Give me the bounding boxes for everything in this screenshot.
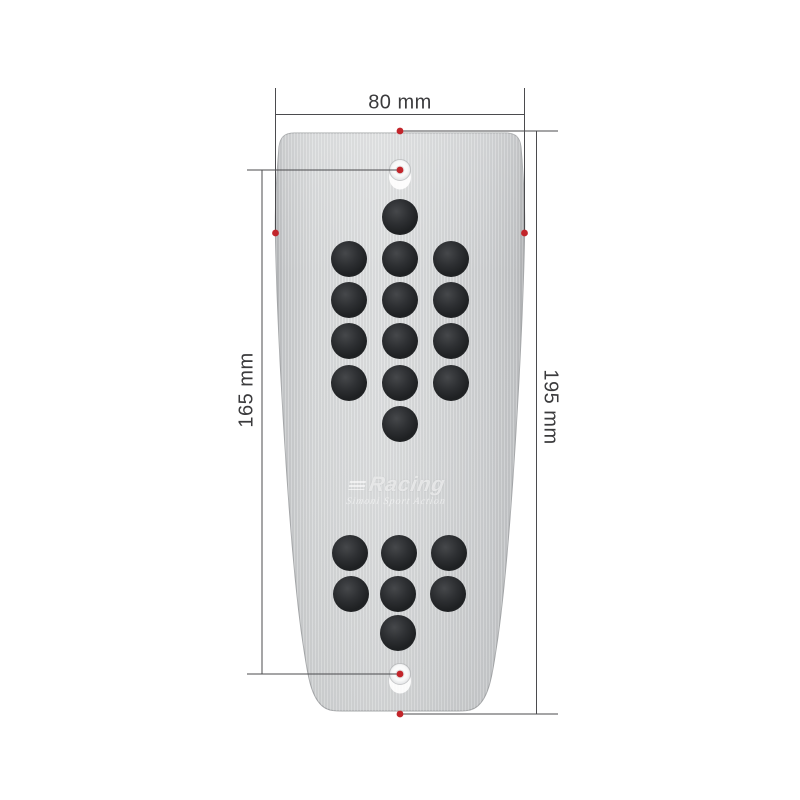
rubber-pin bbox=[382, 282, 418, 318]
rubber-pin bbox=[380, 615, 416, 651]
rubber-pin bbox=[433, 323, 469, 359]
annotation-red-dot bbox=[397, 671, 404, 678]
rubber-pin bbox=[331, 282, 367, 318]
width-dimension-label: 80 mm bbox=[368, 92, 432, 115]
pedal-plate-scene bbox=[0, 0, 800, 800]
rubber-pin bbox=[331, 323, 367, 359]
rubber-pin bbox=[433, 241, 469, 277]
rubber-pin bbox=[382, 365, 418, 401]
rubber-pin bbox=[433, 282, 469, 318]
product-dimension-figure: 80 mm 165 mm 195 mm Racing Simoni Sport … bbox=[0, 0, 800, 800]
annotation-red-dot bbox=[397, 711, 404, 718]
rubber-pin bbox=[431, 535, 467, 571]
rubber-pin bbox=[333, 576, 369, 612]
annotation-red-dot bbox=[397, 128, 404, 135]
rubber-pin bbox=[382, 406, 418, 442]
length-dimension-label: 195 mm bbox=[539, 369, 562, 444]
rubber-pin bbox=[382, 241, 418, 277]
rubber-pin bbox=[382, 323, 418, 359]
rubber-pin bbox=[381, 535, 417, 571]
holes-distance-dimension-label: 165 mm bbox=[236, 352, 259, 427]
rubber-pin bbox=[380, 576, 416, 612]
rubber-pin bbox=[331, 241, 367, 277]
rubber-pin bbox=[331, 365, 367, 401]
annotation-red-dot bbox=[272, 230, 279, 237]
annotation-red-dot bbox=[397, 167, 404, 174]
rubber-pin bbox=[430, 576, 466, 612]
rubber-pin bbox=[433, 365, 469, 401]
rubber-pin bbox=[332, 535, 368, 571]
rubber-pin bbox=[382, 199, 418, 235]
annotation-red-dot bbox=[521, 230, 528, 237]
